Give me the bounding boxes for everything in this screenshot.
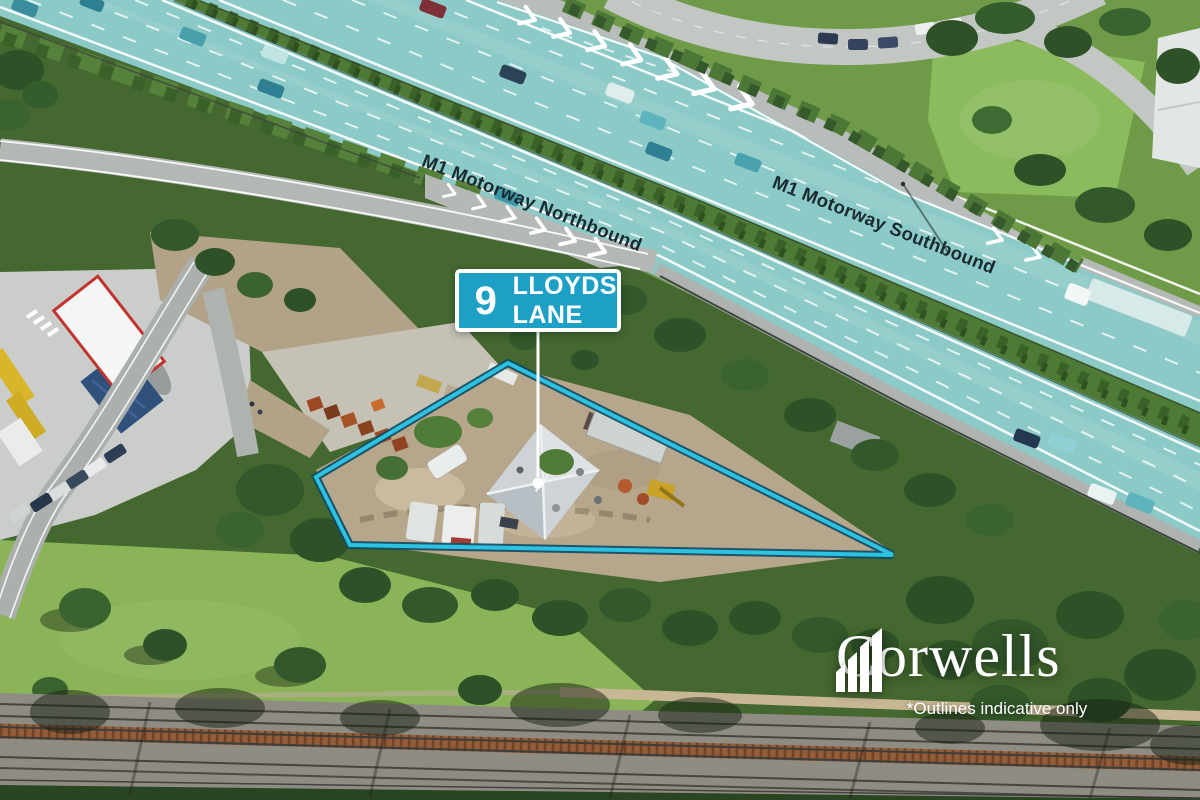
outlines-disclaimer: *Outlines indicative only [872,699,1122,719]
brand-logo: Corwells [836,628,1061,685]
sign-street-line1: LLOYDS [513,272,617,301]
property-outline [316,363,893,555]
sign-street-line2: LANE [513,301,617,330]
pointer-dot [533,478,544,489]
skyline-bars-icon [836,628,884,692]
property-outline-stroke [316,363,893,555]
sign-number: 9 [459,281,513,321]
street-sign: 9 LLOYDS LANE [455,269,621,332]
sign-street-name: LLOYDS LANE [513,272,617,329]
aerial-photo: M1 Motorway Northbound M1 Motorway South… [0,0,1200,800]
